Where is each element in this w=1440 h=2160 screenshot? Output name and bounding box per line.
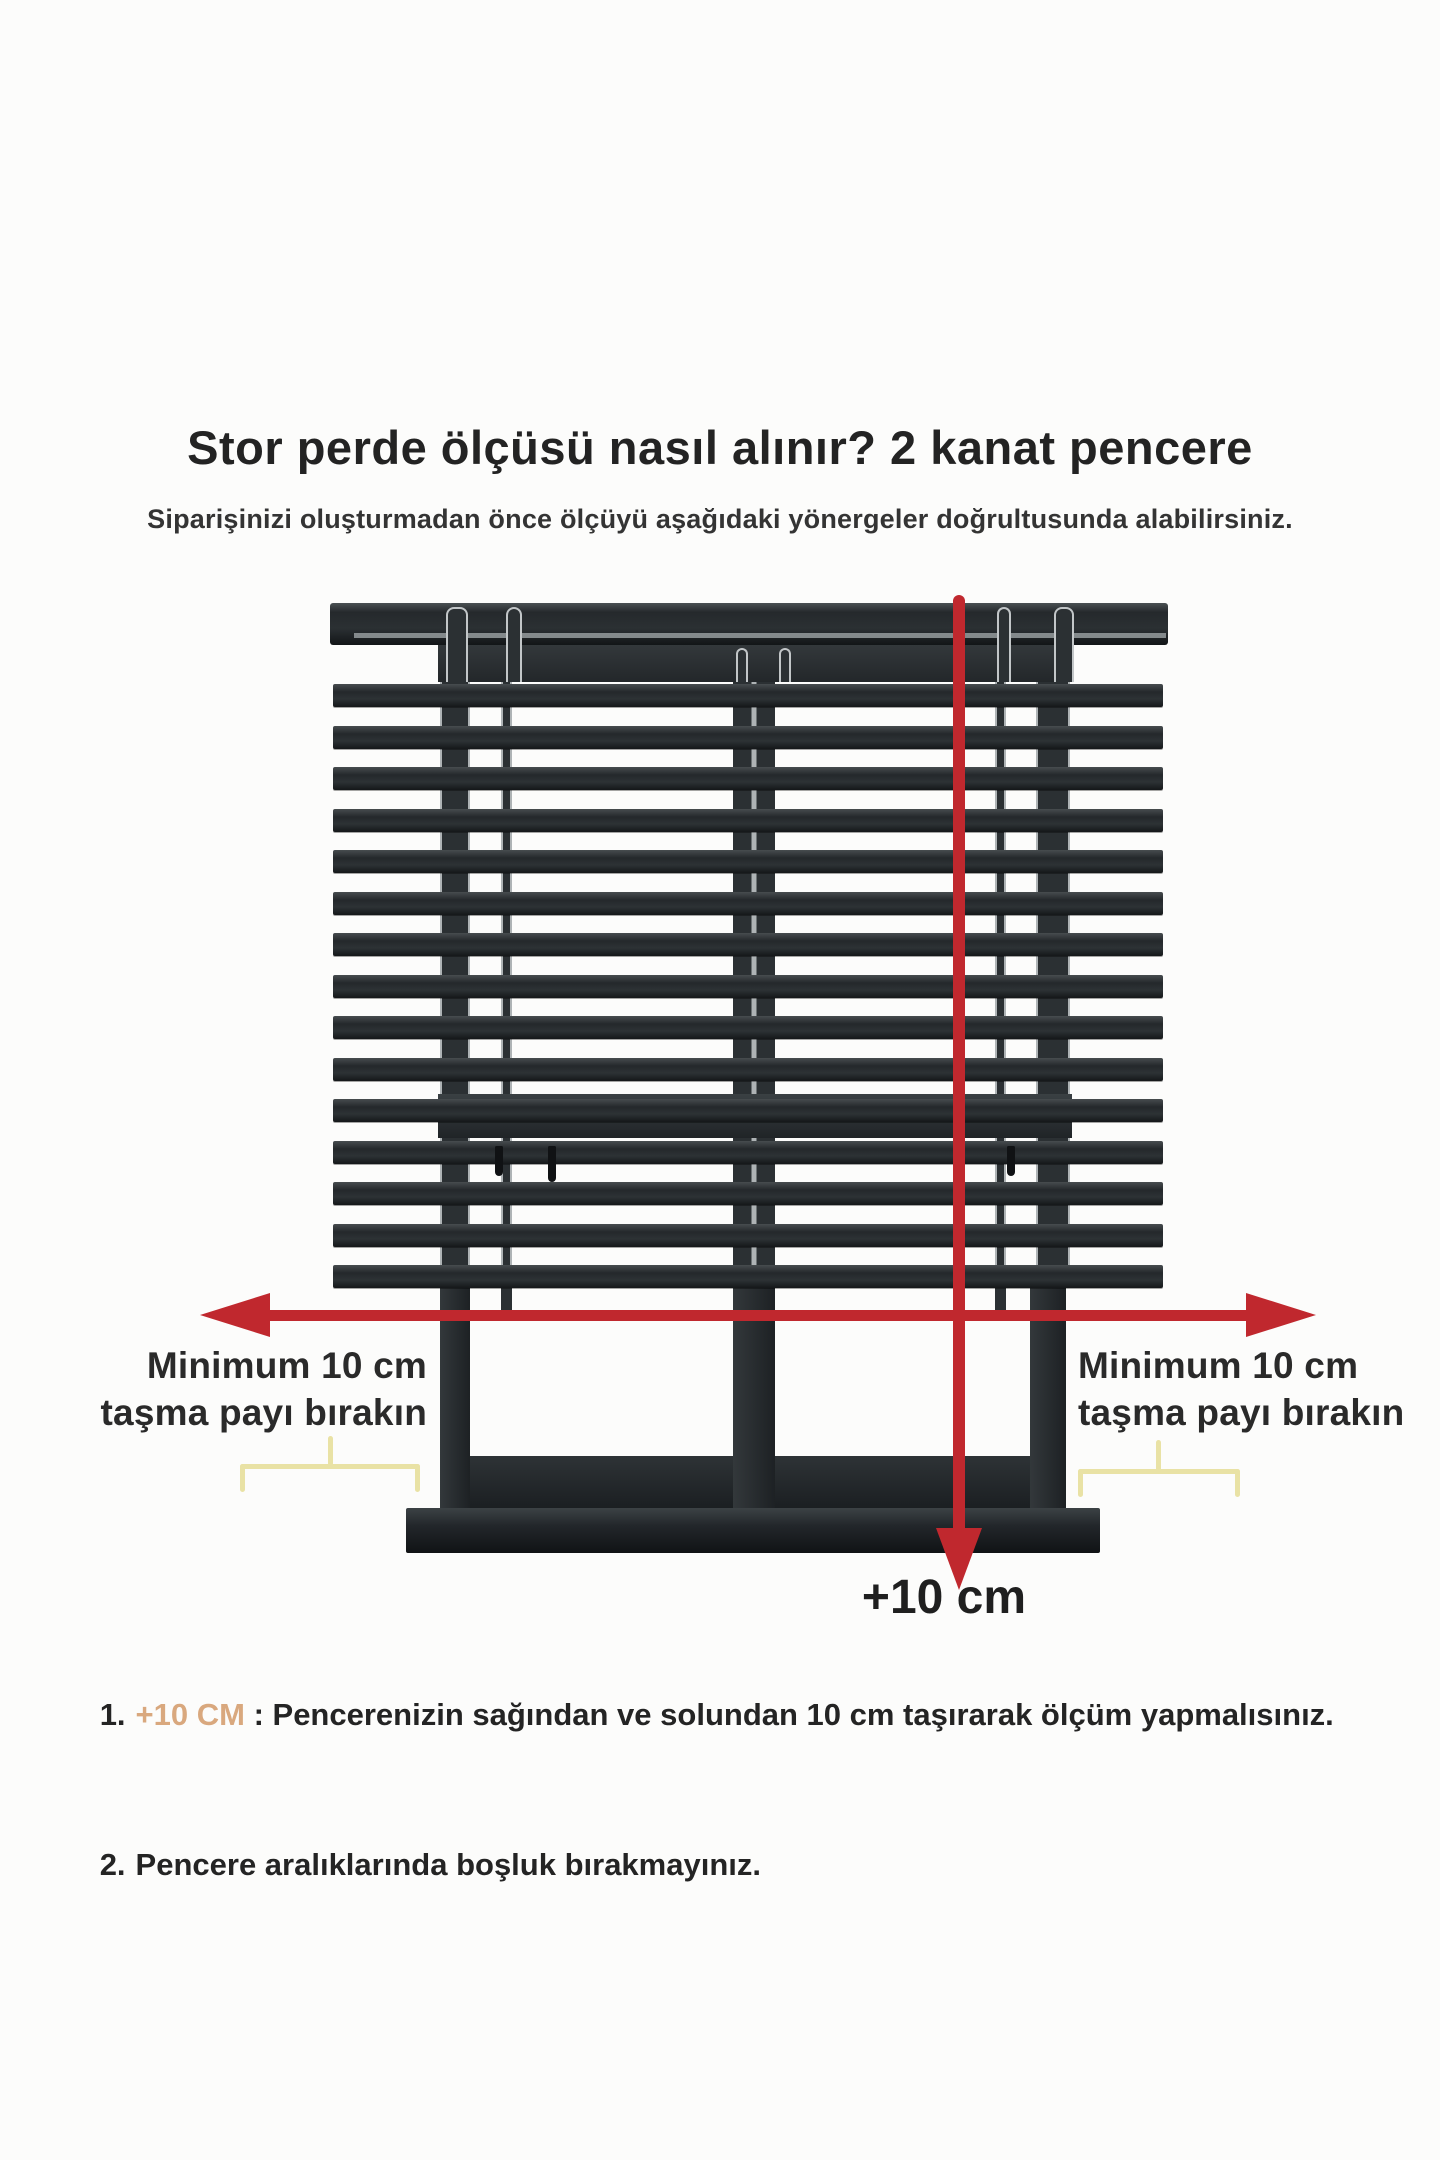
right-overhang-label: Minimum 10 cm taşma payı bırakın <box>1078 1342 1440 1436</box>
measuring-guide-infographic: Stor perde ölçüsü nasıl alınır? 2 kanat … <box>0 0 1440 2160</box>
window-frame-post-top <box>736 648 748 682</box>
window-frame-post-top <box>997 607 1011 682</box>
instruction-item-2: 2.Pencere aralıklarında boşluk bırakmayı… <box>48 1790 1408 1940</box>
right-overhang-bracket-stem <box>1156 1440 1161 1471</box>
window-frame-post-top <box>1054 607 1074 682</box>
blind-slat <box>333 1265 1163 1288</box>
blind-slat <box>333 1016 1163 1039</box>
page-subtitle: Siparişinizi oluşturmadan önce ölçüyü aş… <box>0 504 1440 535</box>
blind-slat <box>333 809 1163 832</box>
right-overhang-bracket-tick <box>1235 1469 1240 1497</box>
instruction-number: 1. <box>100 1697 126 1732</box>
horizontal-measure-arrow-right-head-icon <box>1246 1293 1316 1337</box>
horizontal-measure-arrow-line <box>266 1310 1250 1321</box>
headrail-accent-line <box>354 633 1166 638</box>
instruction-number: 2. <box>100 1847 126 1882</box>
blind-slat <box>333 850 1163 873</box>
blind-slat <box>333 933 1163 956</box>
blind-slat <box>333 892 1163 915</box>
window-top-frame <box>438 645 1072 682</box>
blind-slat <box>333 1182 1163 1205</box>
instruction-text: Pencere aralıklarında boşluk bırakmayını… <box>136 1847 761 1882</box>
blind-slat <box>333 1224 1163 1247</box>
instruction-text: : Pencerenizin sağından ve solundan 10 c… <box>245 1697 1334 1732</box>
left-overhang-label: Minimum 10 cm taşma payı bırakın <box>0 1342 427 1436</box>
window-frame-post-top <box>779 648 791 682</box>
window-frame-post-top <box>446 607 468 682</box>
instruction-list: 1.+10 CM : Pencerenizin sağından ve solu… <box>48 1640 1408 1940</box>
blind-slat <box>333 975 1163 998</box>
left-overhang-label-line1: Minimum 10 cm <box>0 1342 427 1389</box>
right-overhang-label-line1: Minimum 10 cm <box>1078 1342 1440 1389</box>
window-frame-post-lower <box>440 1288 470 1508</box>
window-handle-icon <box>548 1146 556 1182</box>
window-frame-post-top <box>506 607 522 682</box>
horizontal-measure-arrow-left-head-icon <box>200 1293 270 1337</box>
window-handle-icon <box>495 1146 503 1176</box>
blind-slat <box>333 1058 1163 1081</box>
blind-slat <box>333 726 1163 749</box>
right-overhang-bracket-tick <box>1078 1469 1083 1497</box>
left-overhang-bracket-tick <box>240 1464 245 1492</box>
window-handle-icon <box>1007 1146 1015 1176</box>
blind-slat <box>333 1141 1163 1164</box>
blind-slat <box>333 767 1163 790</box>
blind-slat <box>333 684 1163 707</box>
instruction-highlight: +10 CM <box>136 1697 245 1732</box>
left-overhang-bracket-stem <box>328 1436 333 1466</box>
vertical-measure-arrow-line <box>953 595 965 1535</box>
page-title: Stor perde ölçüsü nasıl alınır? 2 kanat … <box>0 420 1440 475</box>
left-overhang-label-line2: taşma payı bırakın <box>0 1389 427 1436</box>
blind-slat <box>333 1099 1163 1122</box>
right-overhang-label-line2: taşma payı bırakın <box>1078 1389 1440 1436</box>
left-overhang-bracket-tick <box>415 1464 420 1492</box>
window-sill <box>406 1508 1100 1553</box>
window-frame-post-lower <box>733 1288 775 1508</box>
window-frame-post-lower <box>1030 1288 1066 1508</box>
instruction-item-1: 1.+10 CM : Pencerenizin sağından ve solu… <box>48 1640 1408 1790</box>
plus-10-cm-label: +10 cm <box>794 1570 1094 1625</box>
